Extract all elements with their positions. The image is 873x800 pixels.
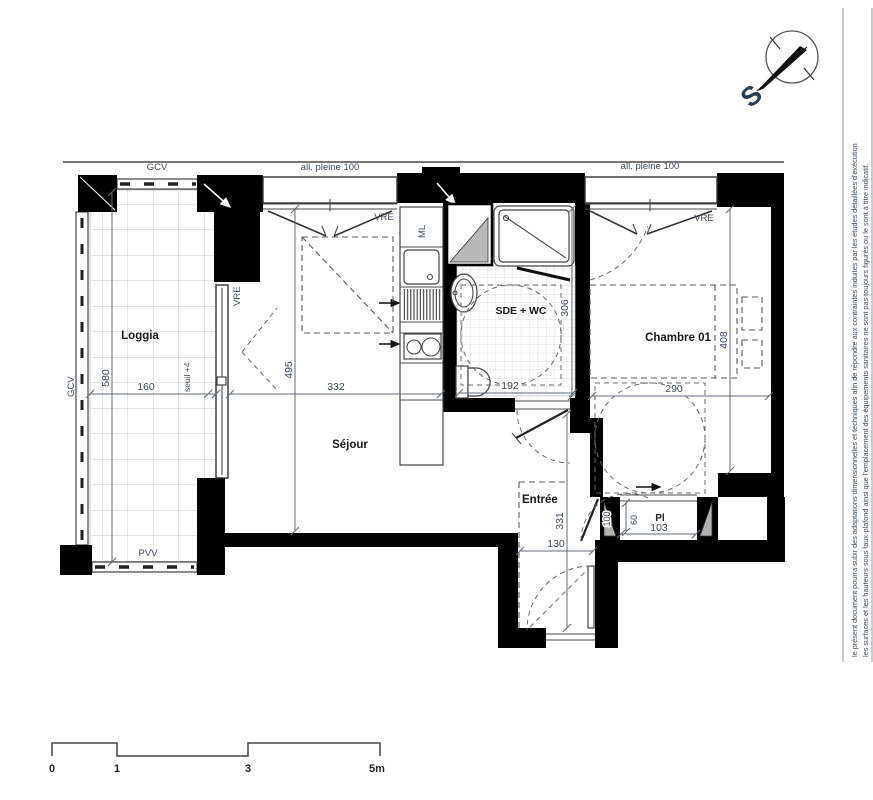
dim-entree-depth: 331: [554, 512, 566, 530]
scale-bar-shape: [52, 743, 380, 756]
all-pleine-label-2: all. pleine 100: [621, 161, 680, 172]
ml-label: ML: [417, 225, 428, 238]
loggia-area: [76, 179, 216, 572]
floorplan-svg: S le présent document pourra subir des a…: [0, 0, 873, 800]
disclaimer-line-2: les surfaces et les hauteurs sous faux-p…: [861, 163, 870, 657]
room-label-sejour: Séjour: [332, 439, 368, 451]
window-swing-arc: [590, 226, 648, 280]
dim-placard-depth: 60: [629, 515, 639, 525]
window-chambre: [585, 177, 717, 203]
dim-vestibule-width: 130: [547, 538, 565, 550]
dim-chambre-width: 290: [665, 383, 683, 395]
scale-tick-0: 0: [49, 763, 55, 775]
room-label-sde: SDE + WC: [495, 305, 546, 317]
south-label: S: [735, 79, 768, 114]
dim-sde-depth: 306: [559, 299, 571, 317]
dim-sejour-width: 332: [327, 381, 345, 393]
pvv-label: PVV: [138, 548, 158, 559]
dim-loggia-depth: 580: [100, 369, 112, 387]
room-label-loggia: Loggia: [121, 330, 159, 342]
vre-label-2: VRE: [694, 213, 714, 224]
chambre-door-leaf: [581, 499, 598, 541]
loggia-door-swing: [242, 308, 277, 390]
sde-wc: [447, 204, 575, 463]
kitchen-hatch-zone: [402, 289, 441, 320]
gcv-left-label: GCV: [66, 376, 77, 397]
kitchen: [379, 207, 443, 465]
scale-bar: 0 1 3 5m: [49, 743, 385, 775]
vre-label-1: VRE: [374, 212, 394, 223]
nightstand-1: [742, 297, 762, 330]
all-pleine-label-1: all. pleine 100: [301, 162, 360, 173]
dim-chambre-depth: 408: [718, 331, 730, 349]
sde-door-leaf: [516, 410, 568, 438]
disclaimer-block: le présent document pourra subir des ada…: [850, 143, 870, 657]
room-label-entree: Entrée: [522, 494, 558, 506]
chambre-turning-circle: [595, 383, 705, 493]
scale-tick-1: 1: [114, 763, 120, 775]
entrance-door-leaf: [588, 566, 594, 628]
nightstand-2: [742, 340, 762, 368]
sejour-furniture: [302, 237, 393, 333]
compass-icon: S: [735, 31, 818, 113]
dim-sde-width: 192: [501, 380, 519, 392]
dim-loggia-width: 160: [137, 381, 155, 393]
vre-label-door: VRE: [232, 286, 243, 306]
compass-tick-nw: [770, 37, 780, 49]
dim-door-width: 100: [602, 511, 612, 526]
sde-door-swing: [517, 410, 570, 463]
disclaimer-line-1: le présent document pourra subir des ada…: [850, 143, 859, 657]
kitchen-sink: [404, 250, 439, 284]
room-label-chambre: Chambre 01: [645, 332, 711, 344]
scale-tick-5: 5m: [369, 763, 385, 775]
room-label-placard: Pl: [655, 513, 665, 524]
scale-tick-3: 3: [245, 763, 251, 775]
dim-seuil: seuil +4: [182, 362, 192, 392]
gcv-top-label: GCV: [147, 162, 168, 173]
wc-bowl: [468, 368, 490, 396]
dim-sejour-depth: 495: [283, 361, 295, 379]
